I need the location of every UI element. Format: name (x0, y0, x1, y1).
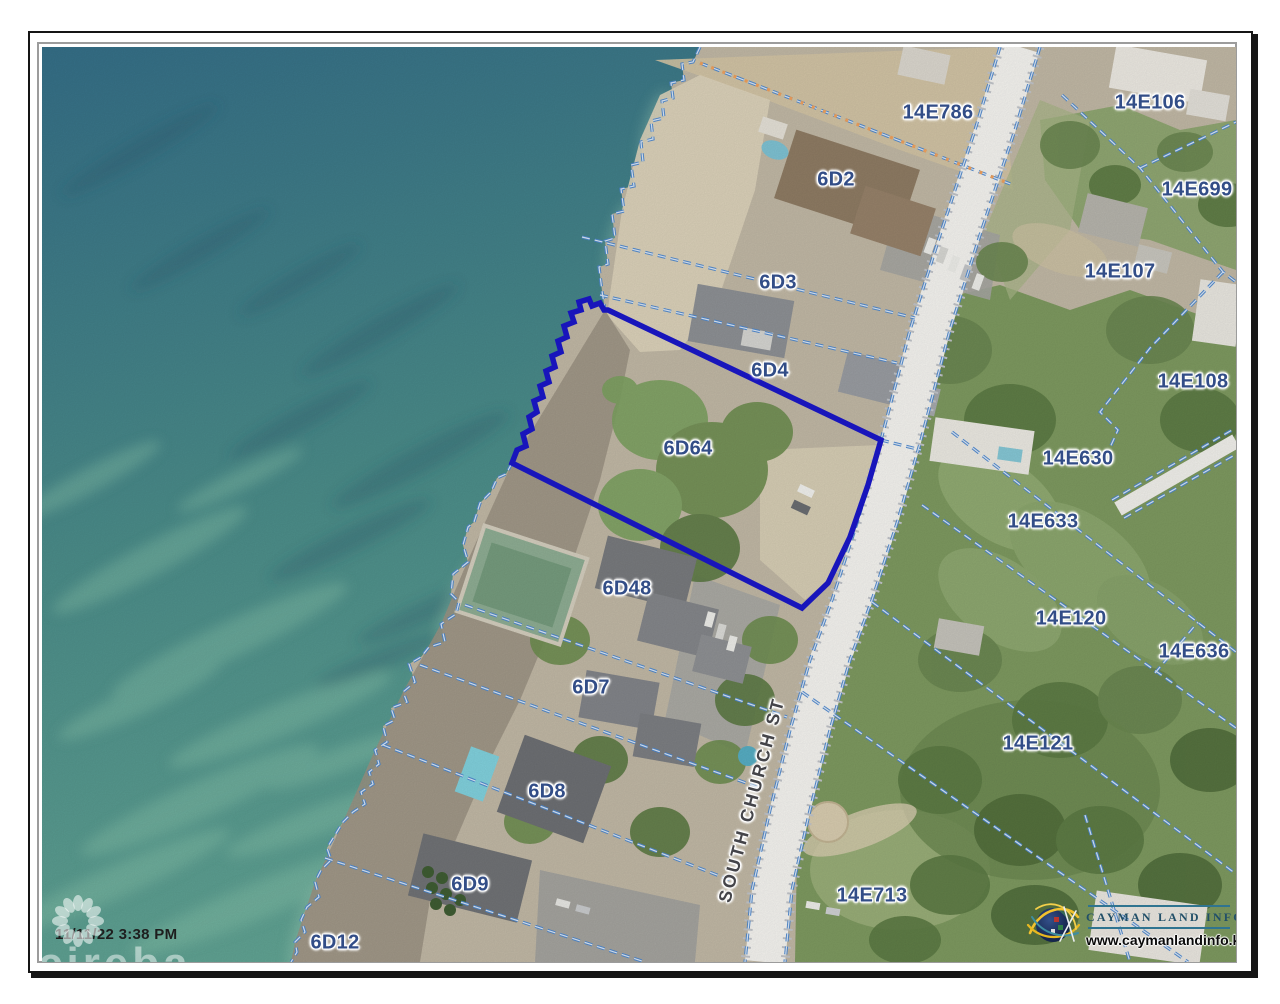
parcel-label-14e106: 14E106 (1115, 92, 1186, 115)
parcel-label-6d4: 6D4 (751, 360, 789, 383)
timestamp: 11/11/22 3:38 PM (55, 926, 177, 943)
parcel-label-14e107: 14E107 (1085, 261, 1156, 284)
parcel-label-14e786: 14E786 (903, 102, 974, 125)
parcel-label-14e633: 14E633 (1008, 511, 1079, 534)
aerial-map[interactable]: 14E7866D214E10614E6996D314E1076D414E1086… (42, 47, 1236, 962)
logo-title: CAYMAN LAND INFO (1086, 907, 1232, 927)
parcel-label-14e713: 14E713 (837, 885, 908, 908)
logo-url: www.caymanlandinfo.ky (1086, 929, 1232, 948)
parcel-label-6d12: 6D12 (310, 932, 359, 955)
parcel-label-6d48: 6D48 (602, 578, 651, 601)
parcel-label-14e636: 14E636 (1159, 641, 1230, 664)
parcel-label-6d9: 6D9 (451, 874, 489, 897)
parcel-label-6d2: 6D2 (817, 169, 855, 192)
parcel-label-6d7: 6D7 (572, 677, 610, 700)
parcel-label-6d3: 6D3 (759, 272, 797, 295)
aerial-imagery (42, 47, 1236, 962)
globe-icon (1024, 895, 1082, 955)
parcel-label-14e121: 14E121 (1003, 733, 1074, 756)
parcel-label-6d8: 6D8 (528, 781, 566, 804)
parcel-label-14e120: 14E120 (1036, 608, 1107, 631)
parcel-label-14e699: 14E699 (1162, 179, 1233, 202)
parcel-label-14e108: 14E108 (1158, 371, 1229, 394)
cayman-land-info-logo: CAYMAN LAND INFO www.caymanlandinfo.ky (1024, 893, 1236, 961)
parcel-label-14e630: 14E630 (1043, 448, 1114, 471)
parcel-label-6d64[interactable]: 6D64 (663, 438, 712, 461)
screenshot-page: 14E7866D214E10614E6996D314E1076D414E1086… (0, 0, 1280, 1004)
